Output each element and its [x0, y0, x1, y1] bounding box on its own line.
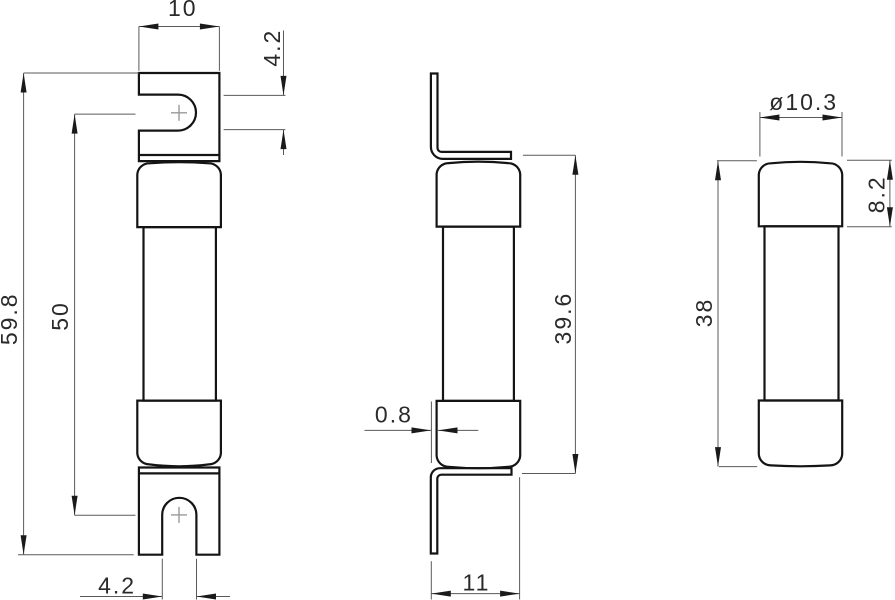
svg-text:4.2: 4.2	[259, 29, 285, 67]
svg-text:0.8: 0.8	[375, 402, 413, 428]
svg-text:4.2: 4.2	[98, 573, 136, 599]
svg-text:38: 38	[691, 298, 717, 328]
svg-text:50: 50	[47, 301, 73, 331]
svg-text:ø10.3: ø10.3	[769, 89, 838, 115]
svg-text:39.6: 39.6	[550, 292, 576, 345]
svg-text:59.8: 59.8	[0, 292, 22, 345]
svg-text:8.2: 8.2	[863, 175, 889, 213]
svg-text:11: 11	[463, 569, 491, 595]
svg-text:10: 10	[168, 0, 198, 21]
